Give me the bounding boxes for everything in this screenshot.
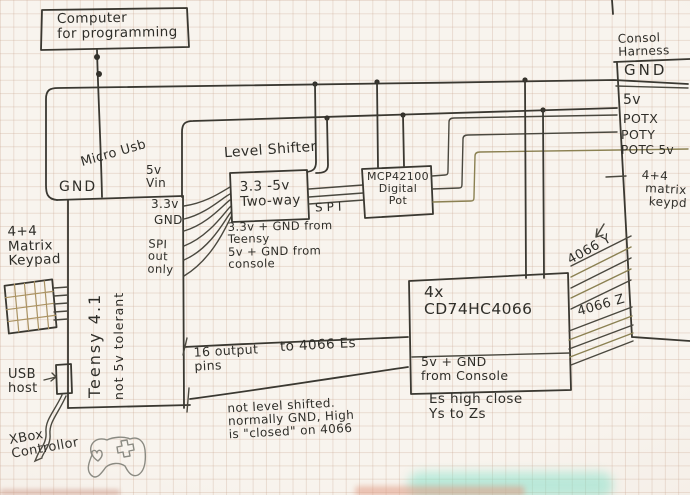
harness-pin-potc5v: POTC 5v <box>621 144 674 157</box>
teensy-gnd-right-label: GND <box>154 214 183 227</box>
hc4066-power-note: 5v + GND from Console <box>421 355 508 382</box>
es-high-note: Es high close Ys to Zs <box>429 392 523 421</box>
teensy-name-label: Teensy 4.1 <box>86 218 103 398</box>
digital-pot-label: MCP42100 Digital Pot <box>367 171 429 207</box>
harness-pin-5v: 5v <box>623 93 641 108</box>
teensy-vin-label: 5v Vin <box>146 164 166 190</box>
spi-bus-label: SPI <box>315 200 346 214</box>
gamepad-sketch <box>88 437 145 477</box>
keypad-left-label: 4+4 Matrix Keypad <box>7 223 61 269</box>
teensy-3v3-label: 3.3v <box>151 198 179 211</box>
circuit-sketch-page: Computer for programming Micro Usb GND 5… <box>0 0 690 495</box>
level-shifter-note: 3.3v + GND from Teensy 5v + GND from con… <box>228 219 334 270</box>
teensy-levelshifter-wires <box>184 187 231 276</box>
computer-label: Computer for programming <box>57 10 178 41</box>
wire-junction-dot <box>94 54 100 60</box>
harness-pin-poty: POTY <box>621 128 655 142</box>
harness-pin-potx: POTX <box>623 112 658 126</box>
pot-gnd-tap <box>377 82 378 167</box>
harness-keypad-label: 4+4 matrix keypd <box>640 169 689 210</box>
usb-host-arrow <box>44 373 56 381</box>
pot-5v-tap <box>403 115 404 166</box>
teensy-gnd-top-label: GND <box>59 180 97 195</box>
usb-host-port-box <box>56 364 72 394</box>
wire-junction-dot <box>96 71 102 77</box>
hc4066-gnd-tap <box>525 80 526 278</box>
hc4066-5v-tap <box>543 110 544 278</box>
level-shifter-box-label: 3.3 -5v Two-way <box>240 178 302 209</box>
keypad-sketch <box>4 279 56 333</box>
not-level-shifted-note: not level shifted. normally GND, High is… <box>227 396 355 441</box>
level-shifter-5v-tap <box>316 118 328 173</box>
hc4066-title: 4x CD74HC4066 <box>424 284 532 317</box>
output-pins-label: 16 output pins <box>193 342 259 372</box>
usb-host-label: USB host <box>8 368 38 396</box>
harness-title: Consol Harness <box>618 31 670 59</box>
level-shifter-gnd-tap <box>307 84 316 172</box>
harness-pin-gnd: GND <box>624 62 667 78</box>
teensy-spi-out-label: SPI out only <box>147 238 174 276</box>
teensy-note-label: not 5v tolerant <box>112 215 126 400</box>
